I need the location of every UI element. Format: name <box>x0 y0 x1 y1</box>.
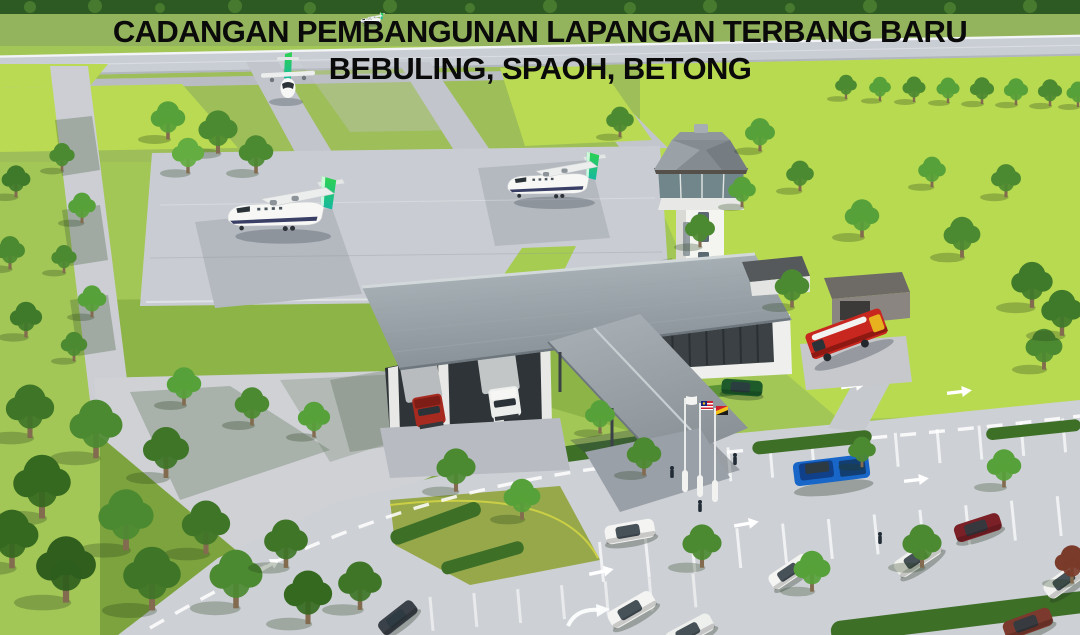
flag-sarawak <box>716 406 728 415</box>
title-line-2: BEBULING, SPAOH, BETONG <box>0 50 1080 87</box>
flag-white <box>686 396 697 405</box>
proposal-title: CADANGAN PEMBANGUNAN LAPANGAN TERBANG BA… <box>0 13 1080 87</box>
render-scene <box>0 0 1080 635</box>
airport-rendering: CADANGAN PEMBANGUNAN LAPANGAN TERBANG BA… <box>0 0 1080 635</box>
title-line-1: CADANGAN PEMBANGUNAN LAPANGAN TERBANG BA… <box>0 13 1080 50</box>
flag-malaysia <box>701 401 713 410</box>
